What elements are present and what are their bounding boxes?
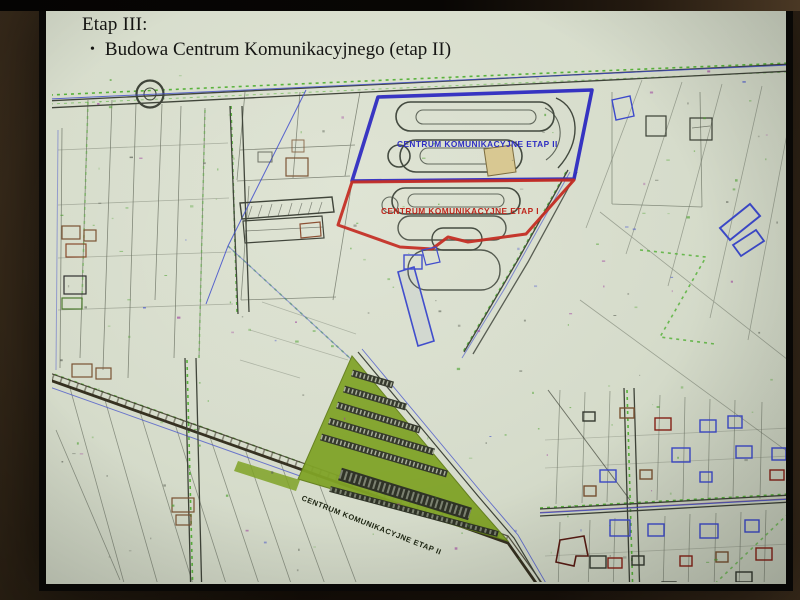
bullet-icon: •	[90, 42, 95, 58]
slide-title: Etap III:	[82, 14, 451, 36]
photo-frame-top-band	[0, 0, 800, 11]
slide-bullet-row: • Budowa Centrum Komunikacyjnego (etap I…	[90, 39, 451, 61]
slide-bullet-text: Budowa Centrum Komunikacyjnego (etap II)	[105, 39, 451, 61]
projected-slide: Etap III: • Budowa Centrum Komunikacyjne…	[46, 10, 786, 584]
slide-title-block: Etap III: • Budowa Centrum Komunikacyjne…	[82, 14, 451, 61]
